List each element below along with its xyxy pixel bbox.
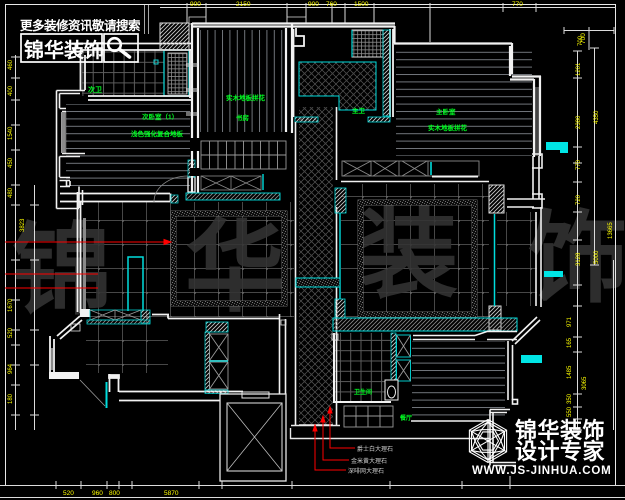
svg-text:960: 960 bbox=[92, 490, 103, 497]
svg-text:3823: 3823 bbox=[20, 218, 26, 232]
svg-text:13665: 13665 bbox=[608, 222, 614, 239]
svg-text:设计专家: 设计专家 bbox=[515, 439, 606, 464]
svg-text:实木地板拼花: 实木地板拼花 bbox=[226, 93, 266, 102]
svg-text:华: 华 bbox=[185, 212, 285, 324]
svg-text:5000: 5000 bbox=[594, 250, 600, 264]
svg-text:卫生间: 卫生间 bbox=[354, 388, 372, 396]
svg-text:1500: 1500 bbox=[354, 1, 369, 8]
svg-text:次卫: 次卫 bbox=[88, 85, 102, 94]
svg-text:900: 900 bbox=[190, 1, 201, 8]
svg-text:760: 760 bbox=[326, 1, 337, 8]
svg-text:350: 350 bbox=[567, 393, 573, 404]
svg-text:450: 450 bbox=[8, 157, 14, 168]
svg-text:次卧室（1）: 次卧室（1） bbox=[142, 112, 178, 121]
svg-text:4350: 4350 bbox=[594, 110, 600, 124]
svg-text:书房: 书房 bbox=[236, 113, 250, 122]
svg-text:165: 165 bbox=[567, 337, 573, 348]
svg-text:770: 770 bbox=[512, 1, 523, 8]
svg-text:装: 装 bbox=[358, 198, 458, 310]
svg-text:480: 480 bbox=[8, 187, 14, 198]
svg-text:720: 720 bbox=[576, 194, 582, 205]
svg-text:5870: 5870 bbox=[164, 490, 179, 497]
svg-text:180: 180 bbox=[8, 393, 14, 404]
svg-text:460: 460 bbox=[8, 59, 14, 70]
svg-text:2150: 2150 bbox=[236, 1, 251, 8]
svg-text:700: 700 bbox=[578, 35, 584, 46]
svg-text:971: 971 bbox=[567, 316, 573, 327]
svg-text:3128: 3128 bbox=[576, 252, 582, 266]
svg-text:900: 900 bbox=[308, 1, 319, 8]
svg-text:浅色强化复合地板: 浅色强化复合地板 bbox=[131, 129, 184, 138]
svg-text:爵士白大理石: 爵士白大理石 bbox=[357, 445, 393, 453]
svg-text:实木地板拼花: 实木地板拼花 bbox=[428, 123, 468, 132]
svg-text:964: 964 bbox=[8, 363, 14, 374]
svg-text:2380: 2380 bbox=[576, 115, 582, 129]
svg-text:更多装修资讯敬请搜索: 更多装修资讯敬请搜索 bbox=[20, 18, 141, 33]
svg-text:主卫: 主卫 bbox=[352, 106, 366, 115]
svg-text:770: 770 bbox=[576, 159, 582, 170]
svg-text:3065: 3065 bbox=[582, 376, 588, 390]
svg-text:520: 520 bbox=[63, 490, 74, 497]
svg-text:800: 800 bbox=[109, 490, 120, 497]
svg-text:1201: 1201 bbox=[576, 62, 582, 76]
svg-text:WWW.JS-JINHUA.COM: WWW.JS-JINHUA.COM bbox=[472, 465, 611, 477]
svg-text:520: 520 bbox=[8, 327, 14, 338]
svg-text:主卧室: 主卧室 bbox=[436, 107, 456, 116]
svg-text:1485: 1485 bbox=[567, 365, 573, 379]
svg-text:400: 400 bbox=[8, 85, 14, 96]
svg-text:深啡网大理石: 深啡网大理石 bbox=[348, 467, 384, 475]
svg-text:1670: 1670 bbox=[8, 298, 14, 312]
svg-text:1540: 1540 bbox=[8, 126, 14, 140]
svg-text:金米黄大理石: 金米黄大理石 bbox=[351, 457, 387, 465]
svg-text:550: 550 bbox=[567, 406, 573, 417]
svg-text:锦华装饰: 锦华装饰 bbox=[24, 38, 104, 62]
svg-text:餐厅: 餐厅 bbox=[399, 414, 412, 422]
